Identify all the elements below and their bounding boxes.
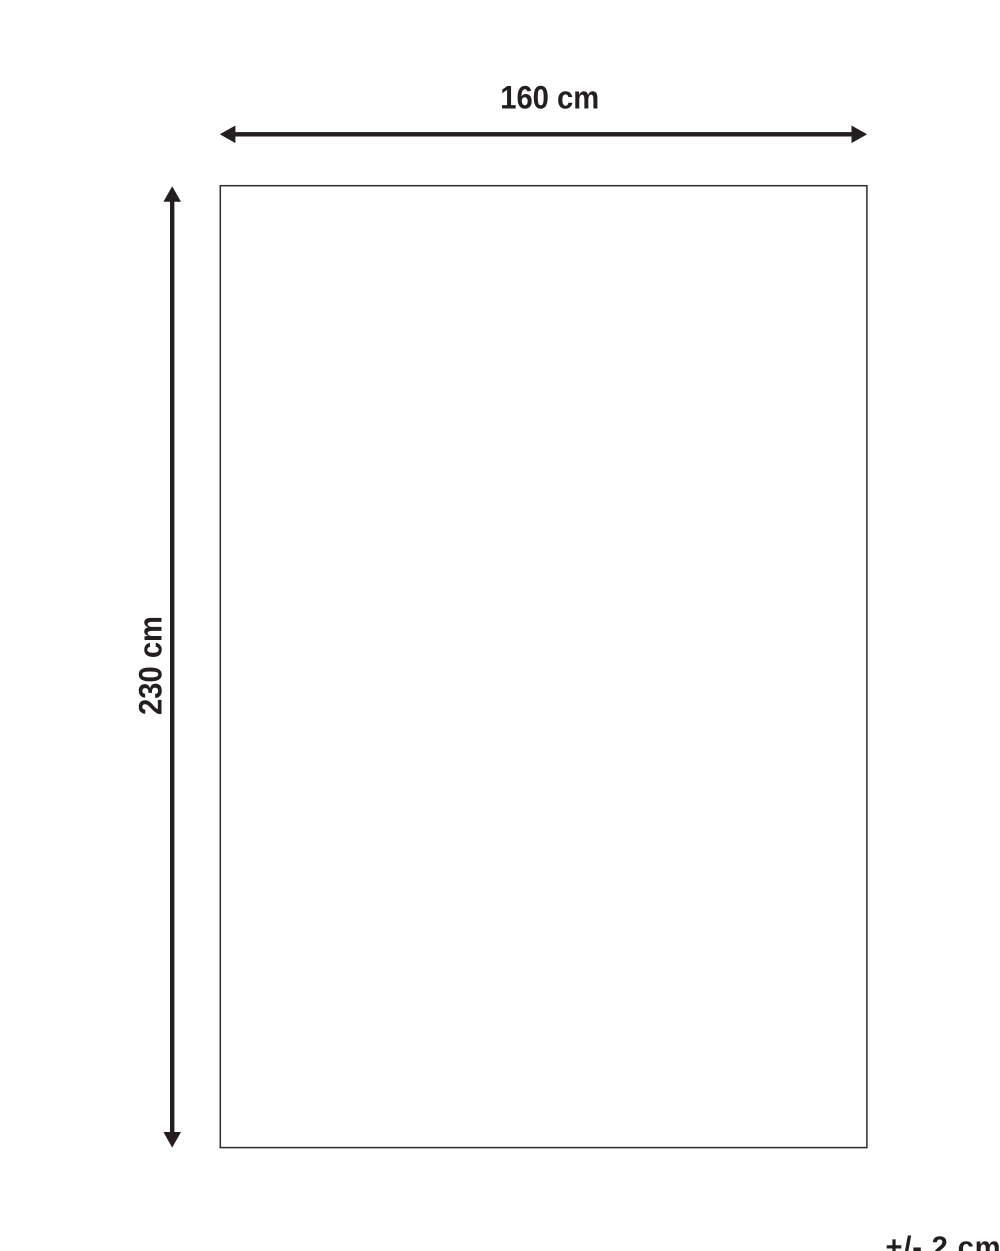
svg-text:160 cm: 160 cm [500, 80, 599, 115]
svg-text:+/- 2 cm: +/- 2 cm [886, 1232, 1000, 1251]
svg-text:230 cm: 230 cm [133, 616, 168, 715]
